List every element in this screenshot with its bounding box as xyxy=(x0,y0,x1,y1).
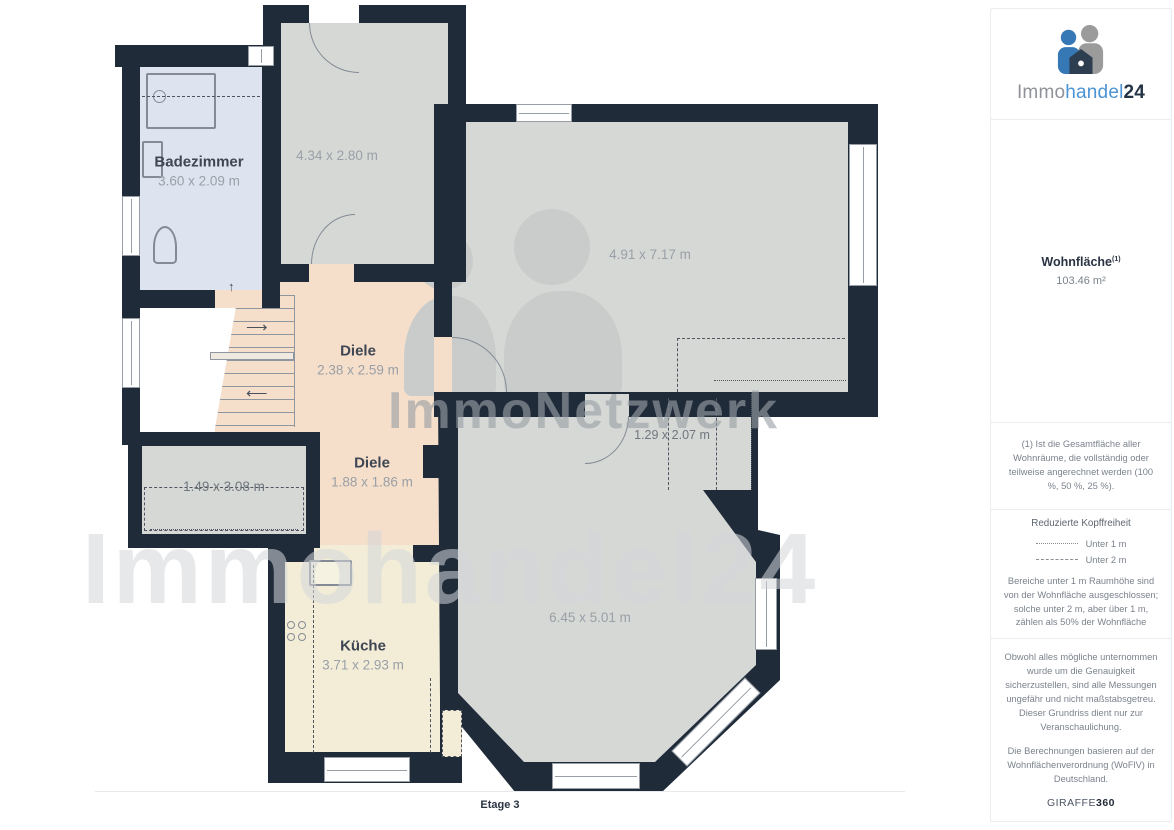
room-label-diele-lower: Diele 1.88 x 1.86 m xyxy=(331,453,413,490)
window xyxy=(552,763,640,789)
provider-wordmark: GIRAFFE360 xyxy=(1047,797,1115,809)
living-area-title: Wohnfläche(1) xyxy=(1041,255,1120,269)
room-label-kueche: Küche 3.71 x 2.93 m xyxy=(322,636,404,673)
sidebar: Immohandel24 Wohnfläche(1) 103.46 m² (1)… xyxy=(990,8,1172,822)
living-area-card: Wohnfläche(1) 103.46 m² xyxy=(990,119,1172,423)
dotted-line-icon xyxy=(1036,543,1078,544)
disclaimer-card: Obwohl alles mögliche unternommen wurde … xyxy=(990,638,1172,822)
room-label-large-room: 4.91 x 7.17 m xyxy=(609,246,691,264)
room-label-badezimmer: Badezimmer 3.60 x 2.09 m xyxy=(154,152,243,189)
headroom-line-under2m xyxy=(142,96,260,97)
logo-card: Immohandel24 xyxy=(990,8,1172,120)
stairs-handrail xyxy=(210,352,294,360)
floorplan-canvas: ↑ ⟶ ⟵ Badezimmer 3.60 x 2.09 m 4.34 x 2.… xyxy=(0,0,990,830)
living-area-value: 103.46 m² xyxy=(1056,275,1106,287)
window xyxy=(248,46,274,66)
person-watermark-head-right xyxy=(514,209,590,285)
disclaimer-calculation: Die Berechnungen basieren auf der Wohnfl… xyxy=(1003,745,1159,787)
room-label-top-room: 4.34 x 2.80 m xyxy=(296,147,378,165)
stair-passage xyxy=(215,290,262,308)
toilet xyxy=(153,226,177,264)
legend-card: Reduzierte Kopffreiheit Unter 1 m Unter … xyxy=(990,509,1172,639)
headroom-line-under2m xyxy=(430,678,431,753)
stair-arrow-left-icon: ⟵ xyxy=(246,386,268,401)
room-label-alcove: 1.29 x 2.07 m xyxy=(634,427,710,443)
legend-row-under-1m: Unter 1 m xyxy=(1036,539,1127,549)
window xyxy=(122,318,140,388)
brand-logo-icon xyxy=(1052,24,1110,74)
brand-wordmark: Immohandel24 xyxy=(1017,82,1145,104)
window xyxy=(122,196,140,256)
footnote-marker: (1) xyxy=(1112,256,1121,263)
disclaimer-accuracy: Obwohl alles mögliche unternommen wurde … xyxy=(1003,651,1159,735)
legend-title: Reduzierte Kopffreiheit xyxy=(1031,518,1130,529)
footnote-card: (1) Ist die Gesamtfläche aller Wohnräume… xyxy=(990,422,1172,510)
legend-description: Bereiche unter 1 m Raumhöhe sind von der… xyxy=(1003,575,1159,631)
window xyxy=(324,757,410,782)
window xyxy=(849,144,877,286)
stove-burner xyxy=(298,633,306,641)
room-label-diele-upper: Diele 2.38 x 2.59 m xyxy=(317,341,399,378)
wall-segment xyxy=(434,104,878,122)
headroom-line-under2m xyxy=(677,338,845,339)
window xyxy=(516,104,572,122)
door-opening xyxy=(309,264,354,282)
footnote-text: (1) Ist die Gesamtfläche aller Wohnräume… xyxy=(1003,438,1159,494)
stove-burner xyxy=(287,633,295,641)
stair-arrow-right-icon: ⟶ xyxy=(246,320,268,335)
stair-arrow-up-icon: ↑ xyxy=(228,280,235,293)
page: { "sidebar": { "brand": { "prefix": "Imm… xyxy=(0,0,1174,830)
kitchen-counter-notch xyxy=(442,710,462,757)
door-opening xyxy=(309,5,359,23)
room-label-storage: 1.49 x 3.08 m xyxy=(183,478,265,496)
room-label-bottom-room: 6.45 x 5.01 m xyxy=(549,609,631,627)
plan-footer: Etage 3 xyxy=(95,791,905,813)
dashed-line-icon xyxy=(1036,559,1078,560)
watermark-immonetzwerk: ImmoNetzwerk xyxy=(388,381,779,441)
watermark-immohandel24: Immohandel24 xyxy=(82,512,818,627)
floor-label: Etage 3 xyxy=(480,799,519,811)
legend-row-under-2m: Unter 2 m xyxy=(1036,555,1127,565)
